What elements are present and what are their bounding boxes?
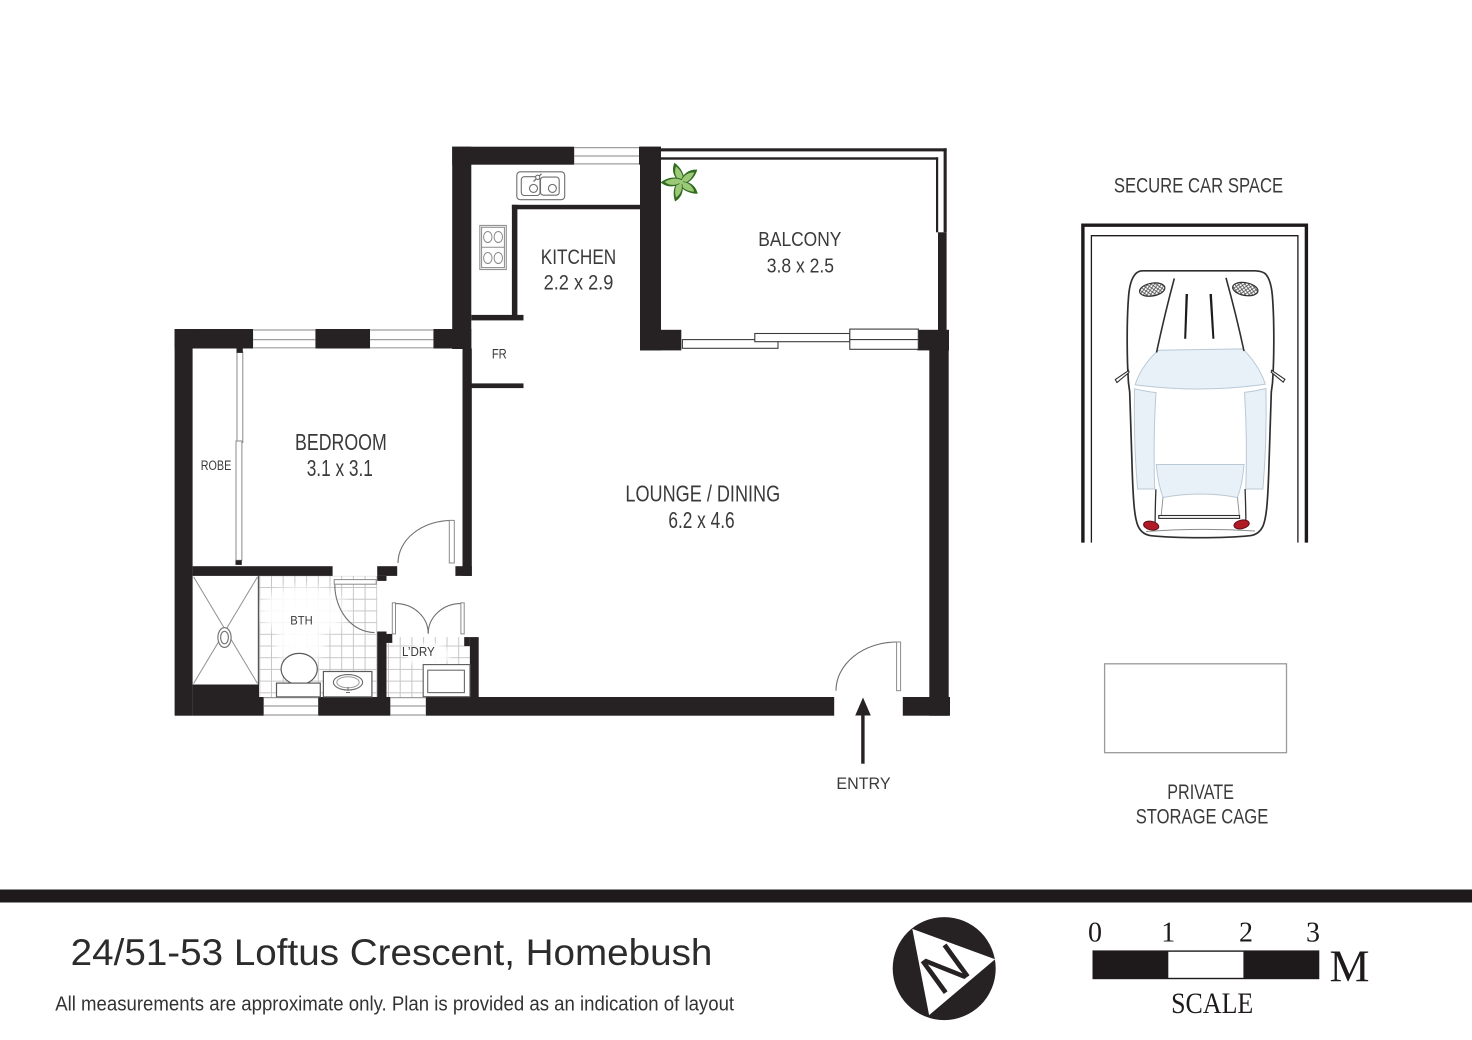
svg-text:0: 0	[1088, 918, 1102, 949]
svg-text:BTH: BTH	[290, 613, 312, 627]
svg-text:3.8 x 2.5: 3.8 x 2.5	[767, 255, 834, 278]
svg-text:2: 2	[1239, 918, 1253, 949]
svg-text:3.1 x 3.1: 3.1 x 3.1	[307, 455, 373, 481]
svg-text:SCALE: SCALE	[1171, 987, 1253, 1020]
svg-text:LOUNGE / DINING: LOUNGE / DINING	[625, 481, 780, 507]
svg-text:STORAGE CAGE: STORAGE CAGE	[1136, 804, 1269, 828]
svg-text:6.2 x 4.6: 6.2 x 4.6	[668, 507, 734, 533]
svg-text:All measurements are approxima: All measurements are approximate only. P…	[55, 994, 734, 1016]
svg-text:1: 1	[1161, 918, 1175, 949]
svg-text:3: 3	[1306, 918, 1320, 949]
svg-text:M: M	[1329, 942, 1369, 992]
svg-text:BALCONY: BALCONY	[758, 228, 841, 251]
svg-text:L’DRY: L’DRY	[402, 645, 435, 659]
svg-text:2.2 x 2.9: 2.2 x 2.9	[544, 272, 614, 295]
svg-text:24/51-53 Loftus Crescent, Home: 24/51-53 Loftus Crescent, Homebush	[71, 931, 713, 973]
svg-text:SECURE CAR SPACE: SECURE CAR SPACE	[1114, 174, 1283, 198]
svg-text:PRIVATE: PRIVATE	[1167, 780, 1234, 804]
svg-text:ROBE: ROBE	[201, 458, 232, 474]
svg-text:FR: FR	[492, 346, 507, 362]
svg-text:ENTRY: ENTRY	[836, 774, 890, 793]
svg-text:BEDROOM: BEDROOM	[295, 429, 387, 455]
svg-text:KITCHEN: KITCHEN	[541, 246, 616, 269]
